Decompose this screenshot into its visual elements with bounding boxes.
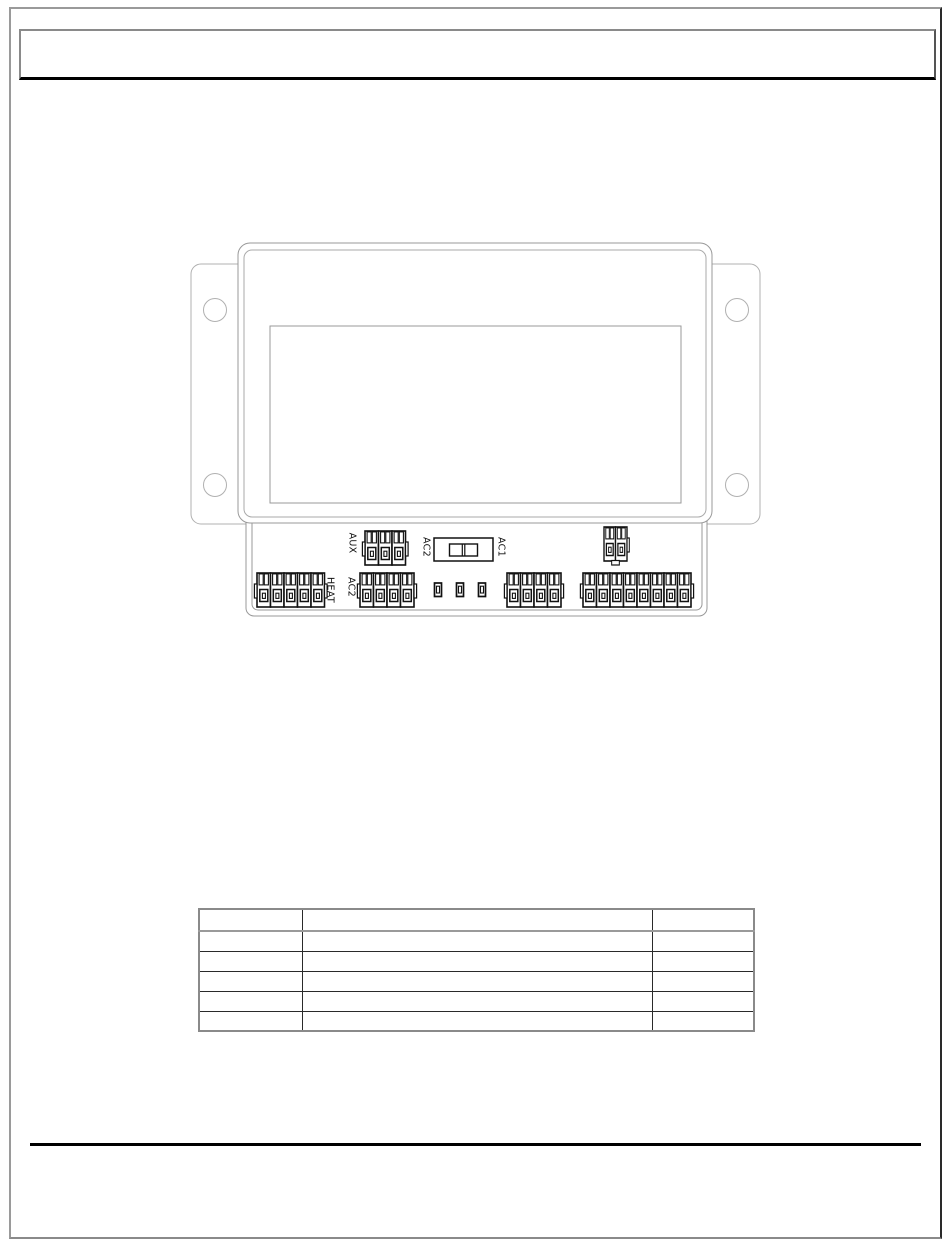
header-title-box	[19, 29, 936, 80]
table-cell	[653, 931, 755, 951]
display-window	[270, 326, 681, 503]
table-cell	[199, 931, 303, 951]
table-cell	[653, 991, 755, 1011]
table-row	[199, 909, 754, 931]
table-row	[199, 971, 754, 991]
terminal-block-right	[580, 573, 693, 607]
table-cell	[303, 991, 653, 1011]
table-cell	[653, 951, 755, 971]
label-heat: HEAT	[325, 577, 336, 603]
table-cell	[199, 951, 303, 971]
config-jumpers	[435, 583, 486, 597]
table-cell	[199, 991, 303, 1011]
terminal-block-mid	[504, 573, 563, 607]
table-cell	[653, 971, 755, 991]
label-ac2-switch: AC2	[421, 537, 432, 557]
page-border-frame	[9, 7, 942, 1239]
table-cell	[303, 951, 653, 971]
front-panel	[238, 243, 712, 523]
thermostat-device-diagram: AUX AC2 AC1 HEAT AC2	[185, 238, 765, 623]
jumper-1	[435, 583, 442, 597]
table-cell	[303, 971, 653, 991]
table-cell	[653, 909, 755, 931]
terminal-block-aux	[362, 531, 408, 565]
spec-table	[198, 908, 755, 1032]
table-cell	[303, 909, 653, 931]
table-cell	[199, 971, 303, 991]
table-cell	[653, 1011, 755, 1031]
label-ac1-switch: AC1	[496, 537, 507, 557]
label-ac2-terminal: AC2	[346, 577, 357, 597]
table-row	[199, 951, 754, 971]
jumper-3	[479, 583, 486, 597]
table-cell	[303, 931, 653, 951]
table-row	[199, 991, 754, 1011]
label-aux: AUX	[347, 533, 358, 554]
jumper-2	[457, 583, 464, 597]
table-row	[199, 931, 754, 951]
terminal-block-power	[604, 527, 629, 565]
ac-selector-switch	[434, 538, 493, 561]
table-cell	[199, 1011, 303, 1031]
terminal-block-heat	[254, 573, 327, 607]
table-row	[199, 1011, 754, 1031]
table-cell	[199, 909, 303, 931]
table-cell	[303, 1011, 653, 1031]
terminal-block-ac2	[357, 573, 416, 607]
footer-separator-line	[30, 1143, 921, 1146]
